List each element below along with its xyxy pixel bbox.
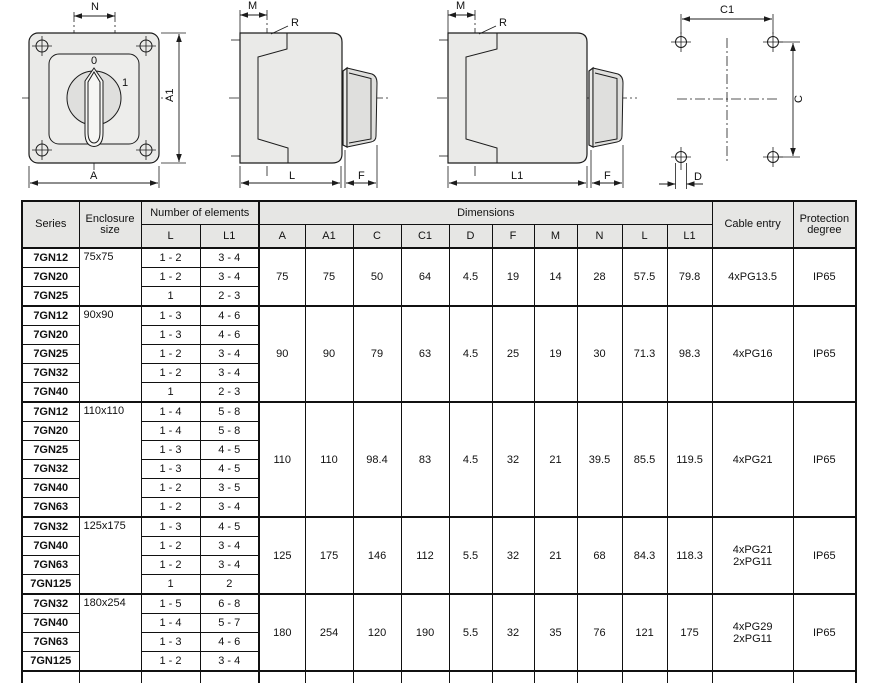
cutoff-cell <box>712 671 793 683</box>
elements-l1-cell: 3 - 4 <box>200 248 259 268</box>
knob-side <box>593 68 623 147</box>
elements-l1-cell: 6 - 8 <box>200 594 259 614</box>
col-header-dim-a: A <box>259 225 305 249</box>
elements-l-cell: 1 - 3 <box>141 441 200 460</box>
drill-hole-icon <box>671 147 691 170</box>
dimension-value-cell: 57.5 <box>622 248 667 306</box>
cutoff-cell <box>449 671 492 683</box>
col-header-dim-a1: A1 <box>305 225 353 249</box>
dimension-value-cell: 85.5 <box>622 402 667 517</box>
cable-entry-cell: 4xPG21 <box>712 402 793 517</box>
protection-degree-cell: IP65 <box>793 517 856 594</box>
elements-l1-cell: 4 - 5 <box>200 460 259 479</box>
elements-l-cell: 1 - 3 <box>141 306 200 326</box>
cable-entry-cell: 4xPG13.5 <box>712 248 793 306</box>
dimension-value-cell: 14 <box>534 248 577 306</box>
cutoff-cell <box>534 671 577 683</box>
dimension-value-cell: 175 <box>305 517 353 594</box>
dimension-value-cell: 4.5 <box>449 306 492 402</box>
dimension-value-cell: 112 <box>401 517 449 594</box>
elements-l1-cell: 3 - 4 <box>200 652 259 672</box>
dimension-value-cell: 19 <box>492 248 534 306</box>
dimension-value-cell: 146 <box>353 517 401 594</box>
series-cell: 7GN32 <box>22 460 79 479</box>
elements-l1-cell: 3 - 4 <box>200 345 259 364</box>
cutoff-cell <box>667 671 712 683</box>
enclosure-size-cell: 110x110 <box>79 402 141 517</box>
elements-l-cell: 1 - 3 <box>141 633 200 652</box>
table-row: 7GN12110x1101 - 45 - 811011098.4834.5322… <box>22 402 856 422</box>
elements-l1-cell: 2 <box>200 575 259 595</box>
dimensions-table: Series Enclosure size Number of elements… <box>21 200 857 683</box>
protection-degree-cell: IP65 <box>793 594 856 671</box>
side-view-l-drawing: M R L F <box>229 0 391 188</box>
dim-label-m: M <box>456 0 465 12</box>
series-cell: 7GN40 <box>22 537 79 556</box>
dimension-value-cell: 90 <box>259 306 305 402</box>
series-cell: 7GN25 <box>22 345 79 364</box>
col-header-l: L <box>141 225 200 249</box>
dim-label-l: L <box>289 170 295 182</box>
table-row: 7GN32125x1751 - 34 - 51251751461125.5322… <box>22 517 856 537</box>
dimension-value-cell: 98.4 <box>353 402 401 517</box>
dim-label-f: F <box>358 170 365 182</box>
dimension-value-cell: 19 <box>534 306 577 402</box>
dim-label-a1: A1 <box>164 89 176 102</box>
dimension-value-cell: 79 <box>353 306 401 402</box>
series-cell: 7GN12 <box>22 248 79 268</box>
dimension-value-cell: 75 <box>305 248 353 306</box>
cutoff-cell <box>622 671 667 683</box>
cutoff-row <box>22 671 856 683</box>
cutoff-cell <box>259 671 305 683</box>
col-header-dim-c: C <box>353 225 401 249</box>
dimension-value-cell: 110 <box>305 402 353 517</box>
elements-l1-cell: 3 - 4 <box>200 268 259 287</box>
series-cell: 7GN12 <box>22 306 79 326</box>
series-cell: 7GN63 <box>22 556 79 575</box>
elements-l1-cell: 2 - 3 <box>200 287 259 307</box>
cutoff-cell <box>793 671 856 683</box>
series-cell: 7GN40 <box>22 479 79 498</box>
dimension-value-cell: 4.5 <box>449 402 492 517</box>
elements-l-cell: 1 - 2 <box>141 498 200 518</box>
table-row: 7GN32180x2541 - 56 - 81802541201905.5323… <box>22 594 856 614</box>
elements-l-cell: 1 - 4 <box>141 614 200 633</box>
table-row: 7GN1275x751 - 23 - 4757550644.519142857.… <box>22 248 856 268</box>
series-cell: 7GN32 <box>22 364 79 383</box>
dimension-value-cell: 83 <box>401 402 449 517</box>
elements-l-cell: 1 - 2 <box>141 556 200 575</box>
enclosure-size-cell: 90x90 <box>79 306 141 402</box>
series-cell: 7GN32 <box>22 517 79 537</box>
front-view-drawing: 0 1 N A1 A <box>22 1 186 188</box>
col-header-dim-f: F <box>492 225 534 249</box>
dimension-value-cell: 39.5 <box>577 402 622 517</box>
dimension-value-cell: 32 <box>492 517 534 594</box>
elements-l1-cell: 5 - 8 <box>200 422 259 441</box>
cutoff-cell <box>22 671 79 683</box>
elements-l1-cell: 4 - 5 <box>200 441 259 460</box>
elements-l-cell: 1 - 2 <box>141 364 200 383</box>
dimension-value-cell: 79.8 <box>667 248 712 306</box>
dim-label-c1: C1 <box>720 4 734 16</box>
series-cell: 7GN25 <box>22 287 79 307</box>
dimension-value-cell: 50 <box>353 248 401 306</box>
col-header-dim-m: M <box>534 225 577 249</box>
series-cell: 7GN125 <box>22 575 79 595</box>
elements-l1-cell: 2 - 3 <box>200 383 259 403</box>
series-cell: 7GN63 <box>22 498 79 518</box>
cutoff-cell <box>492 671 534 683</box>
cutoff-cell <box>577 671 622 683</box>
elements-l-cell: 1 - 2 <box>141 479 200 498</box>
col-header-elements: Number of elements <box>141 201 259 225</box>
dimension-value-cell: 32 <box>492 402 534 517</box>
enclosure-size-cell: 180x254 <box>79 594 141 671</box>
dimension-value-cell: 180 <box>259 594 305 671</box>
cable-entry-cell: 4xPG21 2xPG11 <box>712 517 793 594</box>
series-cell: 7GN125 <box>22 652 79 672</box>
dim-label-r: R <box>499 17 507 29</box>
series-cell: 7GN20 <box>22 326 79 345</box>
elements-l1-cell: 3 - 4 <box>200 498 259 518</box>
dim-label-m: M <box>248 0 257 12</box>
col-header-dim-n: N <box>577 225 622 249</box>
series-cell: 7GN32 <box>22 594 79 614</box>
dimension-value-cell: 21 <box>534 517 577 594</box>
cable-entry-cell: 4xPG29 2xPG11 <box>712 594 793 671</box>
protection-degree-cell: IP65 <box>793 248 856 306</box>
knob-flange <box>589 68 593 147</box>
elements-l1-cell: 5 - 8 <box>200 402 259 422</box>
elements-l-cell: 1 <box>141 575 200 595</box>
cable-entry-cell: 4xPG16 <box>712 306 793 402</box>
dimension-value-cell: 90 <box>305 306 353 402</box>
elements-l1-cell: 4 - 6 <box>200 306 259 326</box>
dimension-value-cell: 121 <box>622 594 667 671</box>
elements-l-cell: 1 - 2 <box>141 652 200 672</box>
col-header-l1: L1 <box>200 225 259 249</box>
elements-l-cell: 1 - 2 <box>141 248 200 268</box>
elements-l1-cell: 4 - 6 <box>200 326 259 345</box>
dimension-table: Series Enclosure size Number of elements… <box>21 200 857 683</box>
dimension-value-cell: 25 <box>492 306 534 402</box>
series-cell: 7GN40 <box>22 614 79 633</box>
table-row: 7GN1290x901 - 34 - 6909079634.525193071.… <box>22 306 856 326</box>
col-header-dim-d: D <box>449 225 492 249</box>
cutoff-cell <box>353 671 401 683</box>
dimension-value-cell: 71.3 <box>622 306 667 402</box>
cutoff-cell <box>401 671 449 683</box>
col-header-dimensions: Dimensions <box>259 201 712 225</box>
position-label-1: 1 <box>122 77 128 89</box>
elements-l1-cell: 3 - 5 <box>200 479 259 498</box>
elements-l-cell: 1 - 3 <box>141 517 200 537</box>
dim-label-a: A <box>90 170 98 182</box>
elements-l1-cell: 3 - 4 <box>200 556 259 575</box>
dimension-value-cell: 110 <box>259 402 305 517</box>
dim-label-f: F <box>604 170 611 182</box>
elements-l-cell: 1 - 2 <box>141 268 200 287</box>
dimension-value-cell: 5.5 <box>449 594 492 671</box>
dimension-value-cell: 118.3 <box>667 517 712 594</box>
col-header-enclosure: Enclosure size <box>79 201 141 248</box>
dim-label-l1: L1 <box>511 170 523 182</box>
series-cell: 7GN25 <box>22 441 79 460</box>
technical-drawings: 0 1 N A1 A M R L F <box>0 0 874 203</box>
protection-degree-cell: IP65 <box>793 402 856 517</box>
elements-l-cell: 1 - 3 <box>141 326 200 345</box>
series-cell: 7GN20 <box>22 268 79 287</box>
dimension-value-cell: 35 <box>534 594 577 671</box>
knob-flange <box>343 68 347 147</box>
dimension-value-cell: 63 <box>401 306 449 402</box>
elements-l-cell: 1 - 4 <box>141 422 200 441</box>
col-header-series: Series <box>22 201 79 248</box>
dimension-value-cell: 21 <box>534 402 577 517</box>
dimension-value-cell: 30 <box>577 306 622 402</box>
series-cell: 7GN12 <box>22 402 79 422</box>
dimension-value-cell: 120 <box>353 594 401 671</box>
col-header-cable: Cable entry <box>712 201 793 248</box>
elements-l-cell: 1 <box>141 287 200 307</box>
elements-l-cell: 1 - 5 <box>141 594 200 614</box>
cutoff-cell <box>305 671 353 683</box>
elements-l-cell: 1 - 2 <box>141 345 200 364</box>
col-header-dim-c1: C1 <box>401 225 449 249</box>
dimension-value-cell: 175 <box>667 594 712 671</box>
dim-label-r: R <box>291 17 299 29</box>
elements-l-cell: 1 - 2 <box>141 537 200 556</box>
dimension-value-cell: 125 <box>259 517 305 594</box>
elements-l1-cell: 5 - 7 <box>200 614 259 633</box>
dimension-value-cell: 119.5 <box>667 402 712 517</box>
dimension-value-cell: 32 <box>492 594 534 671</box>
series-cell: 7GN40 <box>22 383 79 403</box>
enclosure-size-cell: 75x75 <box>79 248 141 306</box>
dimension-value-cell: 68 <box>577 517 622 594</box>
switch-body-long <box>448 33 587 163</box>
series-cell: 7GN63 <box>22 633 79 652</box>
dimension-value-cell: 64 <box>401 248 449 306</box>
cutoff-cell <box>79 671 141 683</box>
elements-l1-cell: 3 - 4 <box>200 364 259 383</box>
dimension-value-cell: 254 <box>305 594 353 671</box>
dim-label-n: N <box>91 1 99 13</box>
protection-degree-cell: IP65 <box>793 306 856 402</box>
position-label-0: 0 <box>91 55 97 67</box>
drill-hole-icon <box>671 32 691 52</box>
side-view-l1-drawing: M R L1 F <box>437 0 637 188</box>
series-cell: 7GN20 <box>22 422 79 441</box>
cutoff-cell <box>141 671 200 683</box>
dim-label-d: D <box>694 171 702 183</box>
elements-l-cell: 1 <box>141 383 200 403</box>
enclosure-size-cell: 125x175 <box>79 517 141 594</box>
col-header-protection: Protection degree <box>793 201 856 248</box>
elements-l1-cell: 4 - 5 <box>200 517 259 537</box>
dimension-value-cell: 5.5 <box>449 517 492 594</box>
switch-body <box>240 33 342 163</box>
elements-l1-cell: 3 - 4 <box>200 537 259 556</box>
knob-side <box>347 68 377 147</box>
dimension-value-cell: 98.3 <box>667 306 712 402</box>
dimension-value-cell: 75 <box>259 248 305 306</box>
drilling-plan-drawing: C1 C D <box>659 4 805 189</box>
dim-label-c: C <box>793 95 805 103</box>
dimension-value-cell: 4.5 <box>449 248 492 306</box>
elements-l-cell: 1 - 4 <box>141 402 200 422</box>
dimension-value-cell: 76 <box>577 594 622 671</box>
elements-l-cell: 1 - 3 <box>141 460 200 479</box>
dimension-value-cell: 190 <box>401 594 449 671</box>
cutoff-cell <box>200 671 259 683</box>
elements-l1-cell: 4 - 6 <box>200 633 259 652</box>
dimension-value-cell: 28 <box>577 248 622 306</box>
dimension-value-cell: 84.3 <box>622 517 667 594</box>
col-header-dim-l: L <box>622 225 667 249</box>
col-header-dim-l1: L1 <box>667 225 712 249</box>
